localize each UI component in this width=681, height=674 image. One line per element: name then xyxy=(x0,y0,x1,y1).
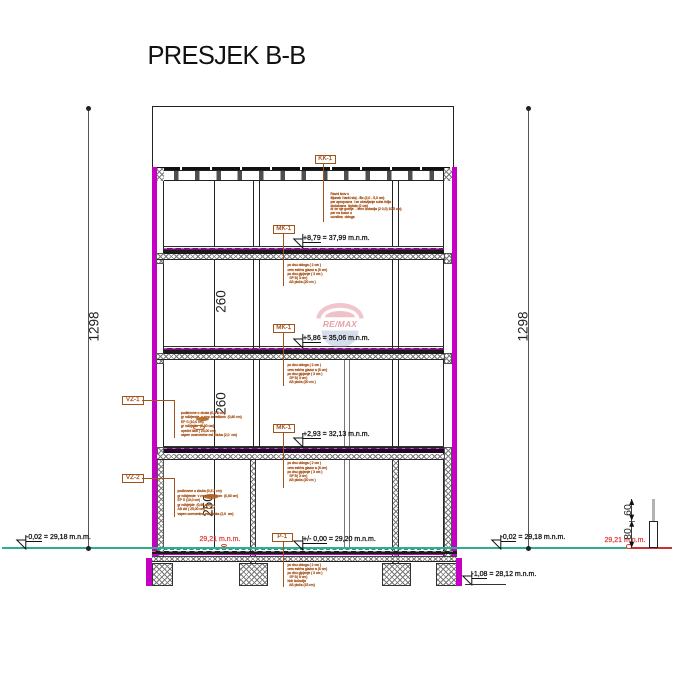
svg-text:RE/MAX: RE/MAX xyxy=(323,319,357,329)
